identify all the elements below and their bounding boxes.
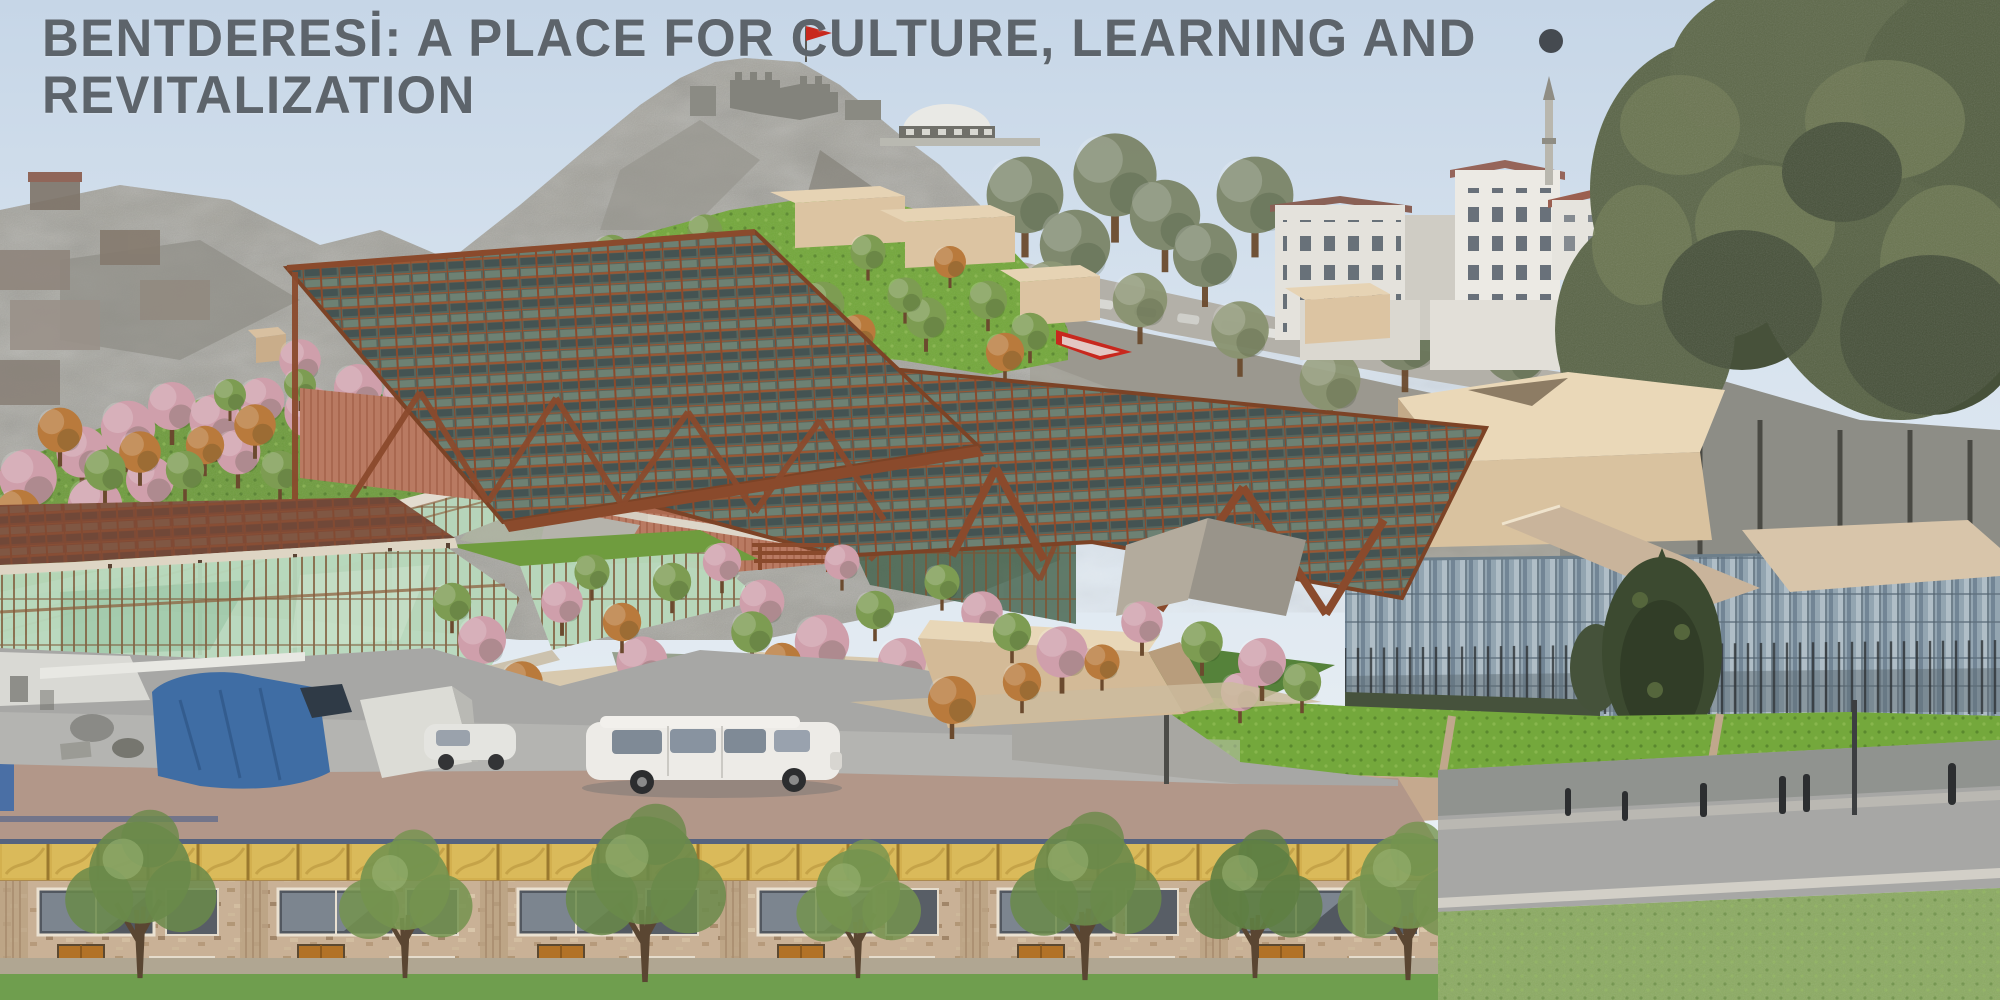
white-van xyxy=(582,716,842,798)
title-line-1: BENTDERESİ: A PLACE FOR CULTURE, LEARNIN… xyxy=(42,10,1477,67)
architectural-poster: BENTDERESİ: A PLACE FOR CULTURE, LEARNIN… xyxy=(0,0,2000,1000)
lamp-globe xyxy=(1539,29,1563,53)
photomontage-scene xyxy=(0,0,2000,1000)
title-line-2: REVITALIZATION xyxy=(42,67,1477,124)
facade-grass xyxy=(0,974,1438,1000)
roof-edge xyxy=(0,839,1438,844)
blue-sliver xyxy=(0,757,14,811)
tarp-covered-truck xyxy=(152,672,352,789)
poster-title: BENTDERESİ: A PLACE FOR CULTURE, LEARNIN… xyxy=(42,10,1477,124)
pavement xyxy=(0,958,1438,976)
